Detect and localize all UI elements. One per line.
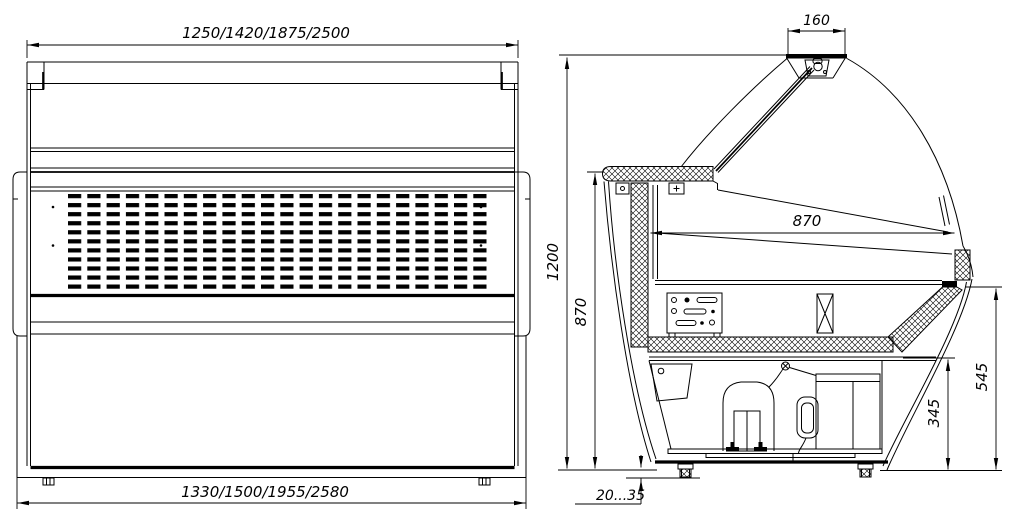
worktop-height-label: 870 — [572, 298, 590, 327]
dimension-display-depth: 870 — [651, 212, 955, 233]
front-ventilation-grille — [52, 194, 488, 294]
back-wall-insulation — [631, 183, 648, 347]
lower-panel-height-label: 345 — [925, 399, 943, 428]
side-view: 160 1200 870 870 545 345 — [544, 13, 1002, 504]
front-bottom-dimension: 1330/1500/1955/2580 — [17, 444, 526, 509]
dimension-canopy-width: 160 — [788, 13, 845, 54]
side-glass-and-strut — [681, 59, 973, 278]
dimension-worktop-height: 870 — [572, 172, 604, 469]
overall-height-label: 1200 — [544, 243, 562, 281]
receiver-drier — [797, 397, 818, 453]
side-worktop — [603, 167, 718, 195]
condenser-unit — [816, 374, 880, 449]
cross-brace — [817, 294, 833, 333]
lamp-support-strut — [716, 68, 812, 171]
display-deck-surface — [657, 233, 952, 254]
side-display-well — [653, 185, 957, 337]
side-canopy — [786, 54, 847, 78]
front-canopy — [27, 62, 518, 90]
canopy-top-strip — [786, 54, 847, 59]
grille-slot-pattern — [68, 194, 488, 294]
front-deck-insulation — [888, 282, 962, 352]
leg-adjust-label: 20...35 — [596, 488, 645, 504]
service-opening-edge — [718, 190, 948, 232]
technical-drawing-page: 1250/1420/1875/2500 — [0, 0, 1013, 522]
side-feet — [678, 464, 873, 477]
front-top-dimension: 1250/1420/1875/2500 — [27, 24, 518, 58]
front-top-dimension-label: 1250/1420/1875/2500 — [182, 24, 350, 42]
front-glass-bottom-height-label: 545 — [973, 363, 991, 392]
canopy-width-label: 160 — [803, 13, 830, 29]
side-machine-compartment — [649, 357, 936, 462]
front-bottom-dimension-label: 1330/1500/1955/2580 — [181, 483, 349, 501]
display-depth-label: 870 — [793, 212, 822, 230]
electrical-panel — [667, 293, 722, 337]
display-case-drawing: 1250/1420/1875/2500 — [0, 0, 1013, 522]
compressor — [723, 382, 774, 452]
well-bottom-insulation — [648, 337, 893, 352]
front-sill-insulation — [955, 250, 970, 280]
worktop-insulation — [603, 167, 714, 182]
side-insulated-shell — [631, 183, 970, 352]
dimension-front-glass-bottom-height: 545 — [880, 287, 1002, 471]
front-glass-curve — [847, 59, 963, 247]
front-view: 1250/1420/1875/2500 — [13, 24, 530, 509]
dimension-overall-height: 1200 — [544, 55, 786, 470]
price-tag-rail — [939, 196, 950, 227]
